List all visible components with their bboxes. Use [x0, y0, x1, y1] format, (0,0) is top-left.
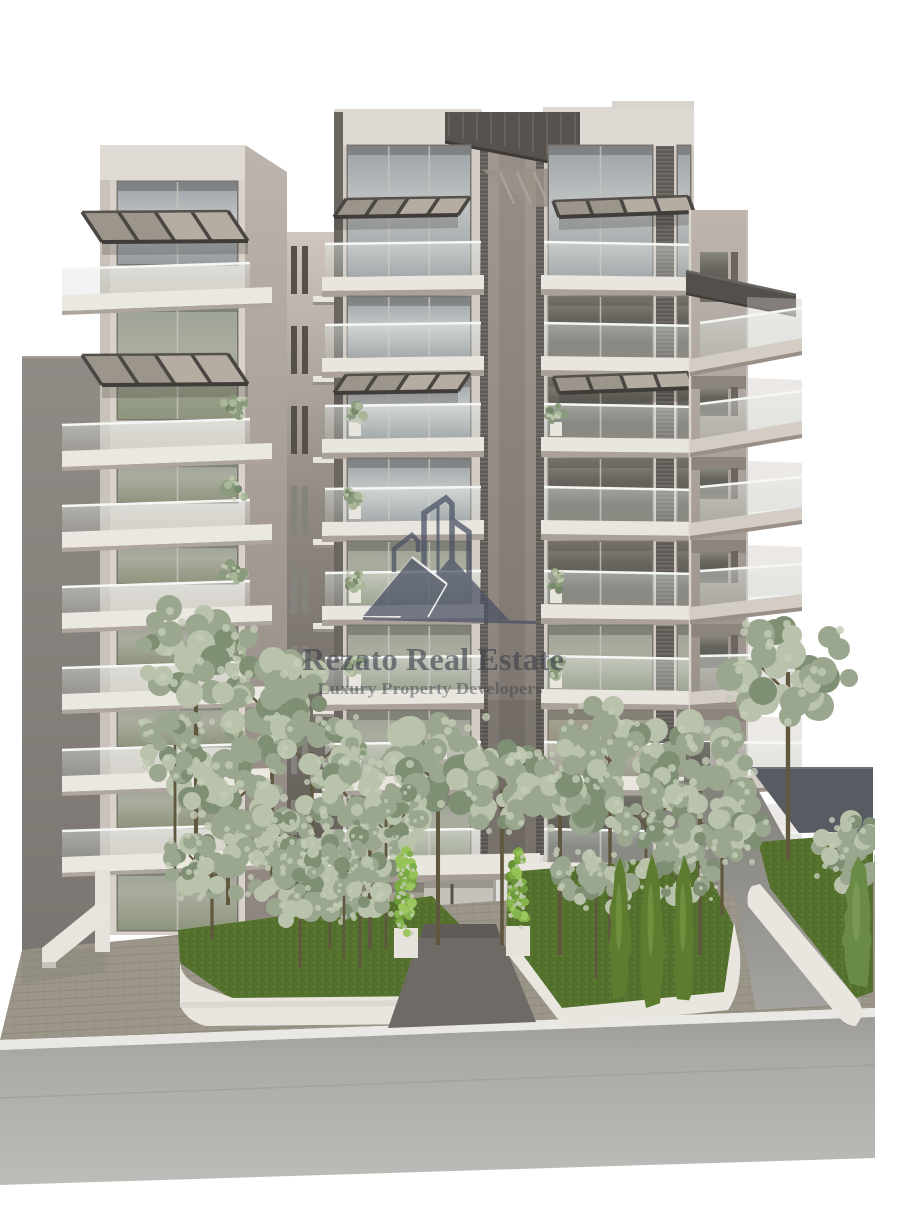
- svg-text:Luxury Property Developers: Luxury Property Developers: [318, 679, 544, 698]
- svg-text:Rezato Real Estate: Rezato Real Estate: [302, 641, 564, 677]
